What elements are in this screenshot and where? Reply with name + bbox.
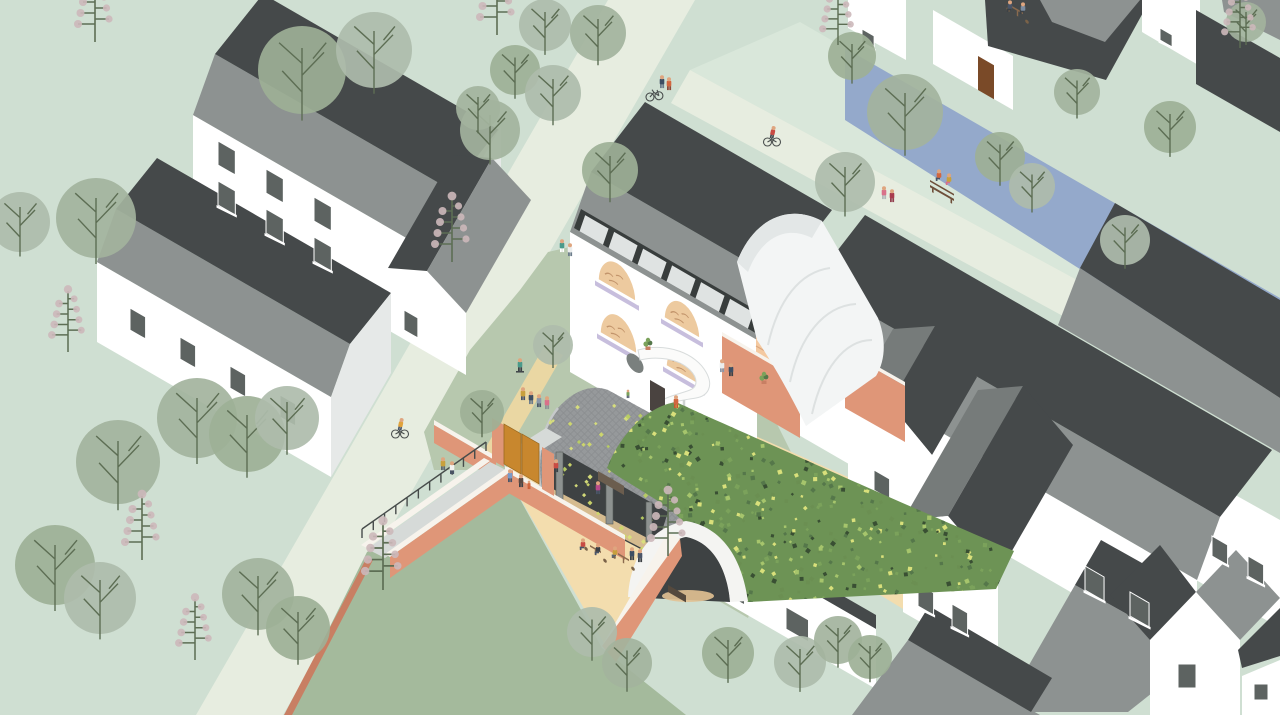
gate-post — [542, 447, 554, 496]
illustration-stage — [0, 0, 1280, 715]
axonometric-village-illustration — [0, 0, 1280, 715]
